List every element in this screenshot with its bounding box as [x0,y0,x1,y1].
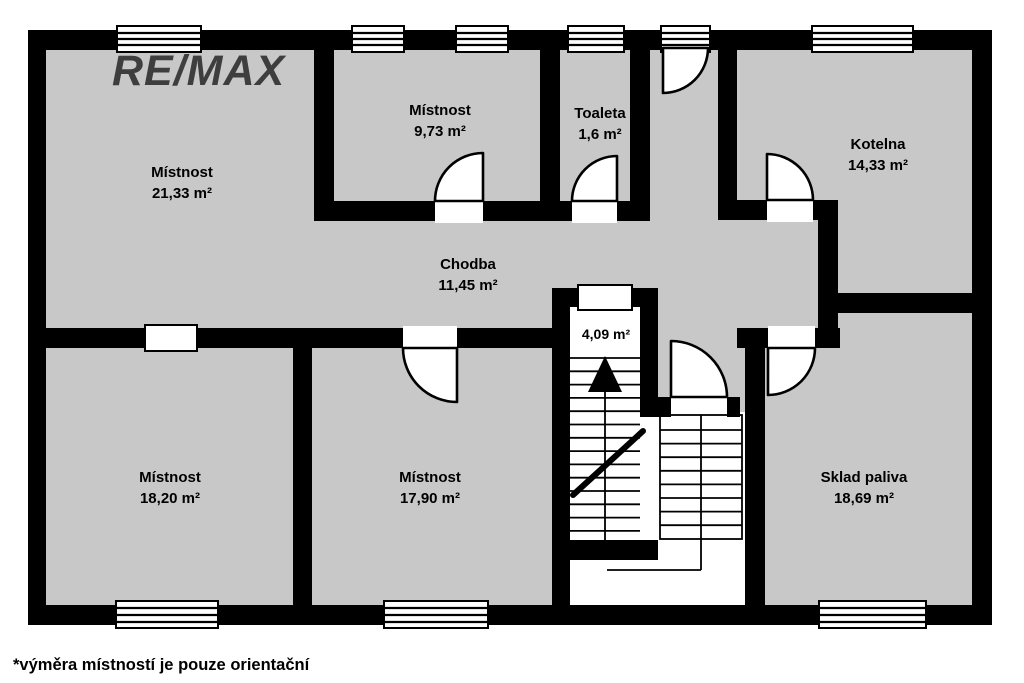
window [819,601,926,628]
room-label-name: Kotelna [850,136,906,153]
room-label-area: 21,33 m² [152,185,212,202]
window [352,26,404,52]
room-label-name: Sklad paliva [821,469,908,486]
window [384,601,488,628]
footnote: *výměra místností je pouze orientační [13,656,311,674]
remax-logo: RE/MAX [112,47,287,95]
wall-kotelna-jog [818,200,838,348]
room-label-area: 18,69 m² [834,490,894,507]
room-label-name: Chodba [440,256,496,273]
room-label-name: Místnost [409,102,471,119]
wall-sklad-left [745,328,765,625]
room-label-area: 9,73 m² [414,123,466,140]
room-label-area: 14,33 m² [848,157,908,174]
floor-plan: Místnost 21,33 m² Místnost 9,73 m² Toale… [0,0,1024,683]
room-label-name: Místnost [399,469,461,486]
wall-kotelna-left [718,48,737,220]
wall-toaleta-right [630,48,650,221]
floor-plan-page: Místnost 21,33 m² Místnost 9,73 m² Toale… [0,0,1024,683]
stairwell-area-label: 4,09 m² [582,326,631,342]
room-label-area: 11,45 m² [438,277,497,294]
opening-room2133-room1820 [145,325,197,351]
room-label-area: 18,20 m² [140,490,200,507]
room-label-name: Místnost [151,164,213,181]
wall-outer-right [972,30,992,625]
window [568,26,624,52]
room-label-area: 1,6 m² [578,126,621,143]
room-label-name: Toaleta [574,105,626,122]
wall-stairwell-bottom [552,540,658,560]
wall-room1820-1790 [293,328,312,625]
room-label-name: Místnost [139,469,201,486]
room-label-area: 17,90 m² [400,490,460,507]
wall-room973-toaleta [540,48,560,221]
wall-outer-left [28,30,46,625]
window [456,26,508,52]
opening-stairwell [578,285,632,310]
window [812,26,913,52]
wall-room2133-right [314,48,334,221]
wall-kotelna-bottom-right [838,293,972,313]
window [116,601,218,628]
